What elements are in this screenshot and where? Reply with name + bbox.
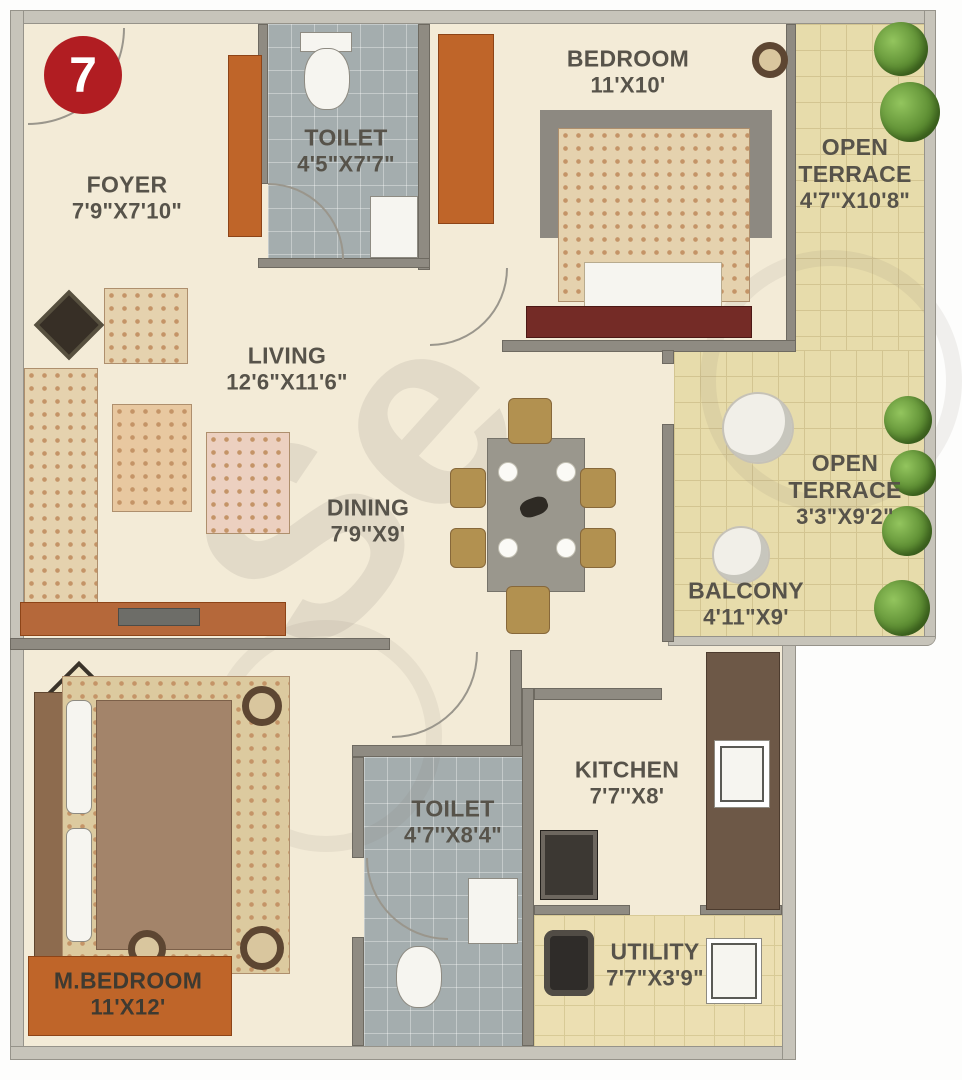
dining-plate: [498, 538, 518, 558]
terrace-round-table: [714, 528, 768, 582]
dining-chair: [508, 398, 552, 444]
wall-toilet-bedroom: [418, 24, 430, 270]
living-armchair: [104, 288, 188, 364]
wall-toilet-bottom-top: [352, 745, 534, 757]
wall-top: [10, 10, 936, 24]
dining-plate: [556, 462, 576, 482]
bedroom-side-table: [752, 42, 788, 78]
mbedroom-pillow: [66, 828, 92, 942]
wall-living-balcony: [662, 350, 674, 364]
dining-chair: [580, 528, 616, 568]
unit-number-badge: 7: [44, 36, 122, 114]
wall-living-mbedroom: [10, 638, 390, 650]
toilet-bowl-icon: [304, 48, 350, 110]
label-dining: DINING7'9''X9': [327, 494, 409, 547]
wall-left: [10, 10, 24, 1060]
label-open-terrace-top: OPEN TERRACE 4'7"X10'8": [798, 134, 911, 214]
dining-chair: [450, 468, 486, 508]
wall-bottom: [10, 1046, 796, 1060]
wall-bedroom-bottom: [502, 340, 796, 352]
wall-toilet-kitchen: [522, 688, 534, 1046]
dining-chair: [450, 528, 486, 568]
terrace-railing-bottom: [668, 636, 936, 646]
terrace-round-table: [724, 394, 792, 462]
mbedroom-pillow: [66, 700, 92, 814]
wall-kitchen-top: [534, 688, 662, 700]
wall-toilet-bottom-left-upper: [352, 757, 364, 858]
label-foyer: FOYER7'9"X7'10": [72, 171, 182, 224]
stove-icon: [540, 830, 598, 900]
mbedroom-stool: [242, 686, 282, 726]
wall-corridor-dining: [510, 650, 522, 757]
plant-icon: [884, 396, 932, 444]
mbedroom-quilt: [96, 700, 232, 950]
label-utility: UTILITY7'7"X3'9": [606, 938, 704, 991]
foyer-wardrobe: [228, 55, 262, 237]
unit-number: 7: [69, 47, 97, 103]
label-balcony: BALCONY4'11"X9': [688, 577, 804, 630]
plant-icon: [874, 22, 928, 76]
living-sofa: [24, 368, 98, 618]
label-open-terrace-mid: OPEN TERRACE 3'3"X9'2": [788, 450, 901, 530]
utility-sink-icon: [706, 938, 762, 1004]
wall-toilet-top-bottom: [258, 258, 430, 268]
dining-plate: [556, 538, 576, 558]
wall-bedroom-terrace: [786, 24, 796, 352]
living-accent-chair: [206, 432, 290, 534]
wall-living-balcony: [662, 424, 674, 642]
living-accent-chair: [112, 404, 192, 512]
dining-plate: [498, 462, 518, 482]
toilet-bowl-icon: [396, 946, 442, 1008]
label-toilet-top: TOILET4'5"X7'7": [297, 124, 395, 177]
bedroom-bed-runner: [526, 306, 752, 338]
mbedroom-headboard: [34, 692, 64, 960]
dining-chair: [506, 586, 550, 634]
mbedroom-stool: [240, 926, 284, 970]
label-master-bedroom: M.BEDROOM11'X12': [54, 967, 202, 1020]
floor-plan: Se: [0, 0, 962, 1080]
plant-icon: [874, 580, 930, 636]
bedroom-wardrobe: [438, 34, 494, 224]
label-toilet-bottom: TOILET4'7''X8'4": [404, 795, 502, 848]
wall-right-lower: [782, 642, 796, 1060]
label-kitchen: KITCHEN7'7''X8': [575, 756, 679, 809]
washbasin-icon: [468, 878, 518, 944]
dining-chair: [580, 468, 616, 508]
washing-machine-icon: [544, 930, 594, 996]
washbasin-icon: [370, 196, 418, 258]
wall-toilet-bottom-left-lower: [352, 937, 364, 1046]
kitchen-sink-icon: [714, 740, 770, 808]
label-bedroom: BEDROOM11'X10': [567, 45, 689, 98]
tv-icon: [118, 608, 200, 626]
label-living: LIVING12'6"X11'6": [226, 342, 348, 395]
wall-kitchen-utility-left: [534, 905, 630, 915]
